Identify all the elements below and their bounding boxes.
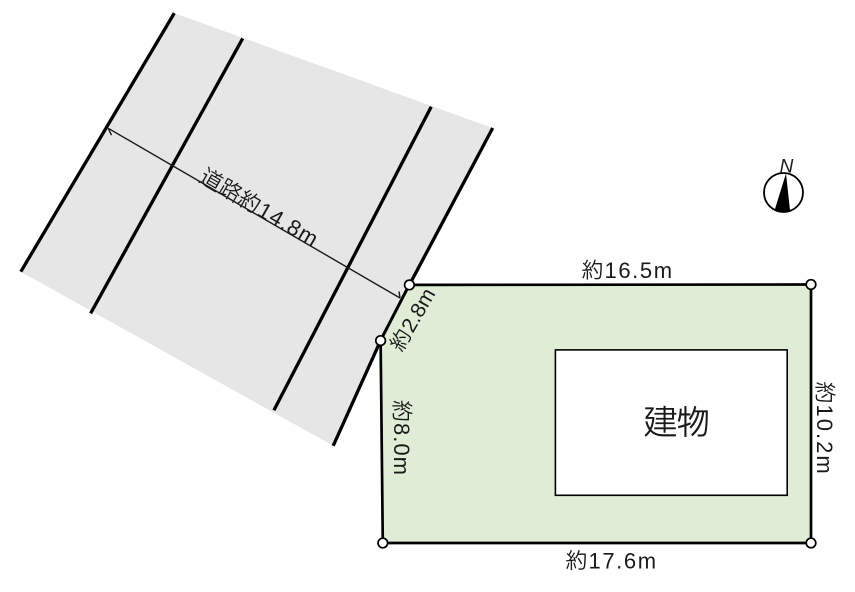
svg-text:16.5m: 16.5m [605,258,674,283]
svg-text:N: N [780,157,794,178]
svg-text:8.0m: 8.0m [389,423,414,476]
svg-text:10.2m: 10.2m [812,405,837,476]
svg-text:17.6m: 17.6m [589,549,658,574]
